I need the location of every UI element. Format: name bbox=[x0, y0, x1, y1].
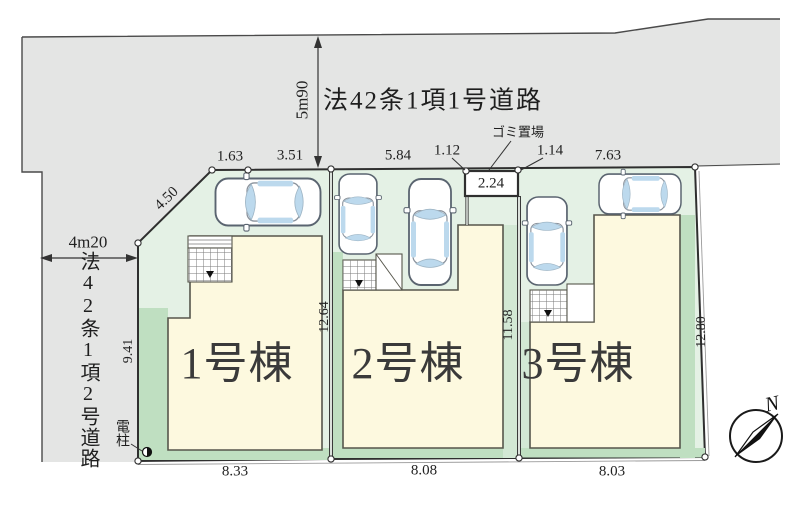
top-road-label: 法42条1項1号道路 bbox=[323, 89, 543, 114]
garbage-station-label: ゴミ置場 bbox=[492, 126, 544, 139]
car bbox=[335, 174, 382, 254]
site-plan: 法42条1項1号道路 5m90 4m20 法42条1項2号道路 1.63 3.5… bbox=[0, 0, 800, 520]
porch-building-3 bbox=[530, 284, 594, 322]
dim-top-1: 1.63 bbox=[217, 150, 243, 165]
car bbox=[404, 179, 456, 285]
dim-top-6: 7.63 bbox=[595, 149, 621, 164]
porch-building-1 bbox=[188, 236, 232, 282]
dim-top-4: 1.12 bbox=[434, 144, 460, 159]
dim-left-edge: 9.41 bbox=[122, 339, 136, 364]
dim-bottom-1: 8.33 bbox=[222, 465, 248, 480]
dim-plot3-depth: 12.80 bbox=[695, 316, 709, 348]
compass-icon bbox=[730, 410, 782, 462]
dim-garbage-width: 2.24 bbox=[478, 177, 504, 192]
left-road-width: 4m20 bbox=[69, 234, 108, 251]
car bbox=[599, 169, 681, 218]
dim-top-2: 3.51 bbox=[277, 149, 303, 164]
top-road-width: 5m90 bbox=[294, 81, 311, 120]
building-3-label: 3号棟 bbox=[522, 342, 635, 386]
dim-bottom-3: 8.03 bbox=[599, 465, 625, 480]
car bbox=[216, 173, 321, 231]
dim-plot1-depth: 12.64 bbox=[318, 301, 332, 333]
left-road-label: 法42条1項2号道路 bbox=[78, 251, 98, 469]
dim-top-3: 5.84 bbox=[385, 149, 411, 164]
dim-bottom-2: 8.08 bbox=[411, 464, 437, 479]
utility-pole-label: 電柱 bbox=[114, 419, 128, 447]
dim-plot2-depth: 11.58 bbox=[502, 310, 516, 341]
car bbox=[522, 197, 571, 285]
dim-top-5: 1.14 bbox=[537, 144, 563, 159]
building-2-label: 2号棟 bbox=[352, 342, 465, 386]
building-1-label: 1号棟 bbox=[181, 342, 294, 386]
